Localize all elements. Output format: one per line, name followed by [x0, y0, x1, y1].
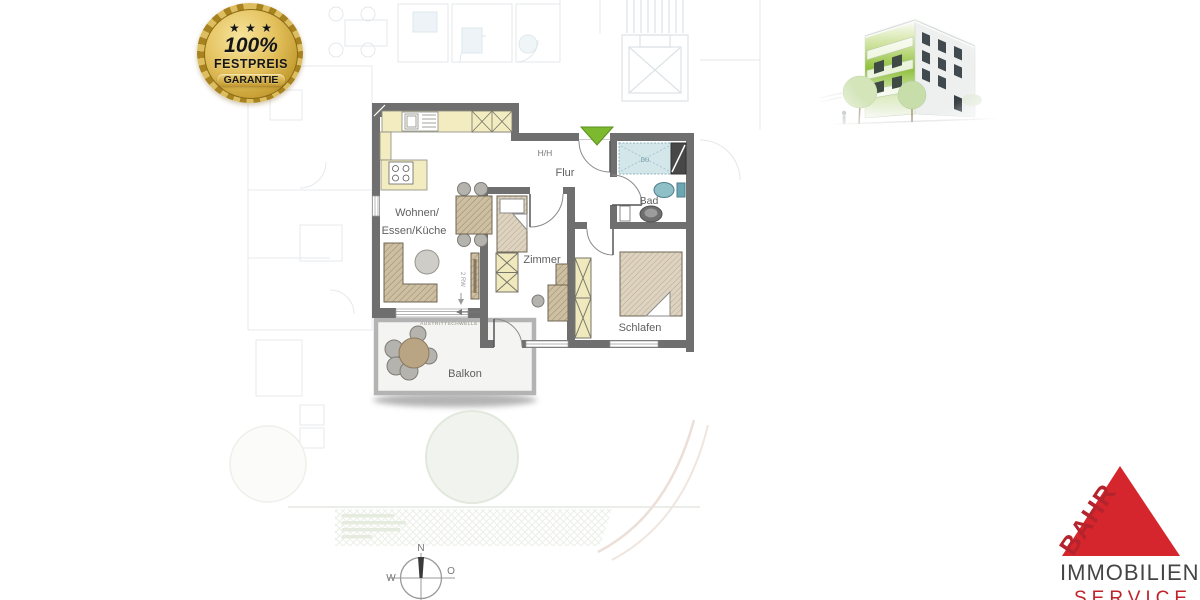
- real-estate-flyer: ★ ★ ★ 100% FESTPREIS GARANTIE: [0, 0, 1200, 600]
- star-icons: ★ ★ ★: [229, 22, 273, 34]
- site-tree: [426, 411, 518, 503]
- badge-core: ★ ★ ★ 100% FESTPREIS GARANTIE: [204, 9, 298, 99]
- floor-plan: 2 RW H/H DU AUSTRITTSCHWELLE Wohnen/ Ess…: [360, 95, 710, 410]
- building-render: [812, 0, 1012, 160]
- bg-neighbor-plan-left: [248, 66, 372, 448]
- label-balkon: Balkon: [448, 368, 482, 380]
- badge-garantie: GARANTIE: [217, 74, 286, 86]
- compass-west: W: [386, 573, 396, 584]
- tall-cabinets: [472, 111, 512, 132]
- handrail-symbol: H/H: [538, 148, 553, 158]
- badge-percent: 100%: [224, 35, 278, 57]
- label-wohnen-1: Wohnen/: [395, 207, 440, 219]
- festpreis-badge: ★ ★ ★ 100% FESTPREIS GARANTIE: [193, 3, 307, 111]
- logo-service: SERVICE: [1074, 588, 1192, 600]
- label-bad: Bad: [640, 195, 659, 207]
- rw-note: 2 RW: [459, 272, 465, 287]
- label-schlafen: Schlafen: [619, 322, 662, 334]
- tv-board: [471, 253, 479, 299]
- shower-label: DU: [641, 158, 650, 164]
- logo-immobilien: IMMOBILIEN: [1060, 560, 1200, 586]
- compass-north: N: [417, 543, 424, 554]
- label-flur: Flur: [556, 167, 575, 179]
- compass-rose: N W O: [380, 540, 470, 600]
- label-zimmer: Zimmer: [523, 254, 561, 266]
- coffee-table: [415, 250, 439, 274]
- threshold-label: AUSTRITTSCHWELLE: [420, 321, 478, 327]
- bahr-logo: BAHR IMMOBILIEN SERVICE: [1058, 460, 1200, 600]
- badge-festpreis: FESTPREIS: [214, 57, 288, 72]
- bg-stairwell-elevator: [622, 0, 688, 101]
- kitchen-island-stove: [381, 160, 427, 190]
- compass-east: O: [447, 566, 455, 577]
- label-wohnen-2: Essen/Küche: [382, 225, 447, 237]
- building-fade-overlay: [810, 0, 1014, 162]
- bg-site-landscape: [230, 393, 708, 560]
